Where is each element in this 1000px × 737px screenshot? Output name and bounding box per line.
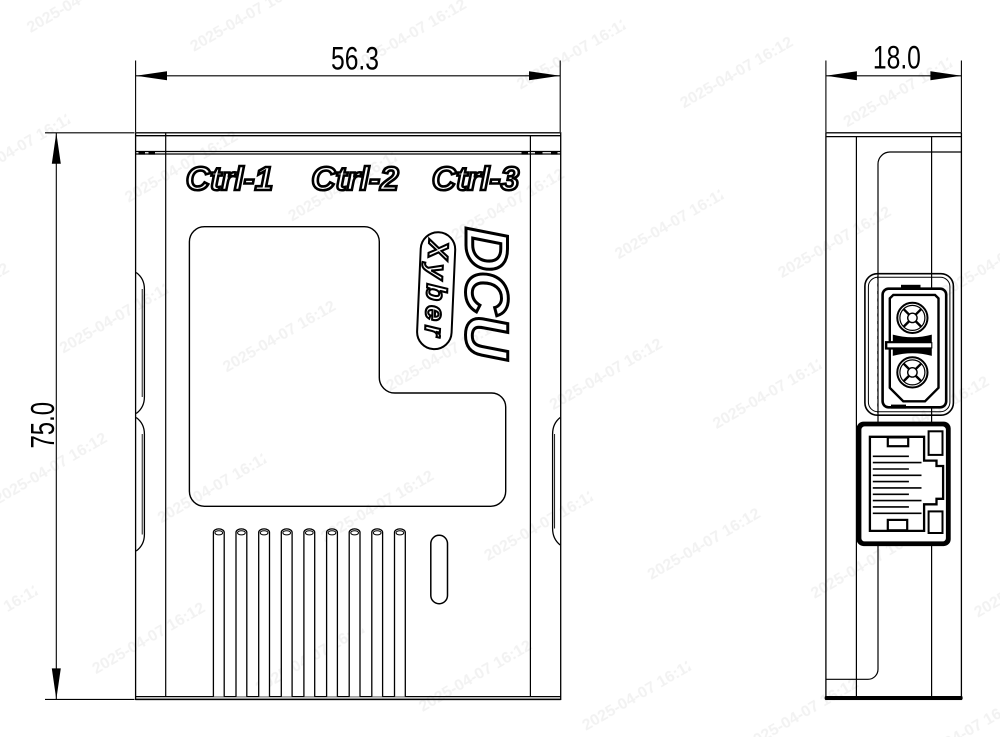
svg-text:Ctrl-2: Ctrl-2 <box>311 161 399 198</box>
svg-text:56.3: 56.3 <box>331 41 379 77</box>
svg-text:75.0: 75.0 <box>24 402 61 449</box>
svg-text:18.0: 18.0 <box>873 40 921 76</box>
svg-text:Xyber: Xyber <box>419 238 454 342</box>
svg-text:Ctrl-3: Ctrl-3 <box>432 161 520 198</box>
svg-text:Ctrl-1: Ctrl-1 <box>186 161 273 198</box>
svg-text:DCU: DCU <box>453 227 520 361</box>
